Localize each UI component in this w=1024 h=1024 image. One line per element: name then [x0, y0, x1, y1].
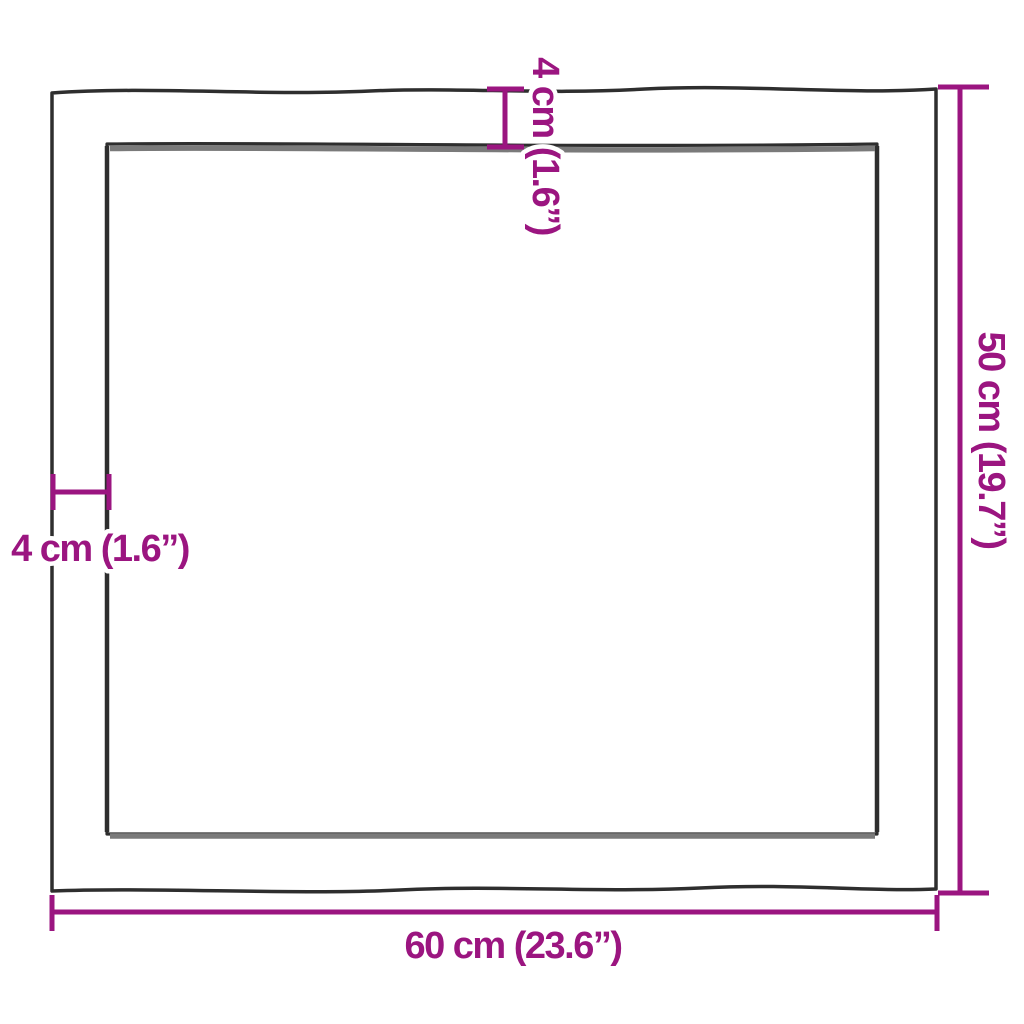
- height-dimension-label: 50 cm (19.7”): [970, 331, 1012, 548]
- board-outer-edge: [52, 88, 936, 892]
- dimension-diagram-canvas: 60 cm (23.6”) 50 cm (19.7”) 4 cm (1.6”) …: [0, 0, 1024, 1024]
- thickness-top-dimension-label: 4 cm (1.6”): [524, 57, 566, 235]
- board-outline-group: [52, 88, 936, 892]
- thickness-left-dimension-label: 4 cm (1.6”): [11, 528, 189, 570]
- width-dimension-label: 60 cm (23.6”): [404, 925, 621, 967]
- product-dimension-diagram: 60 cm (23.6”) 50 cm (19.7”) 4 cm (1.6”) …: [0, 0, 1024, 1024]
